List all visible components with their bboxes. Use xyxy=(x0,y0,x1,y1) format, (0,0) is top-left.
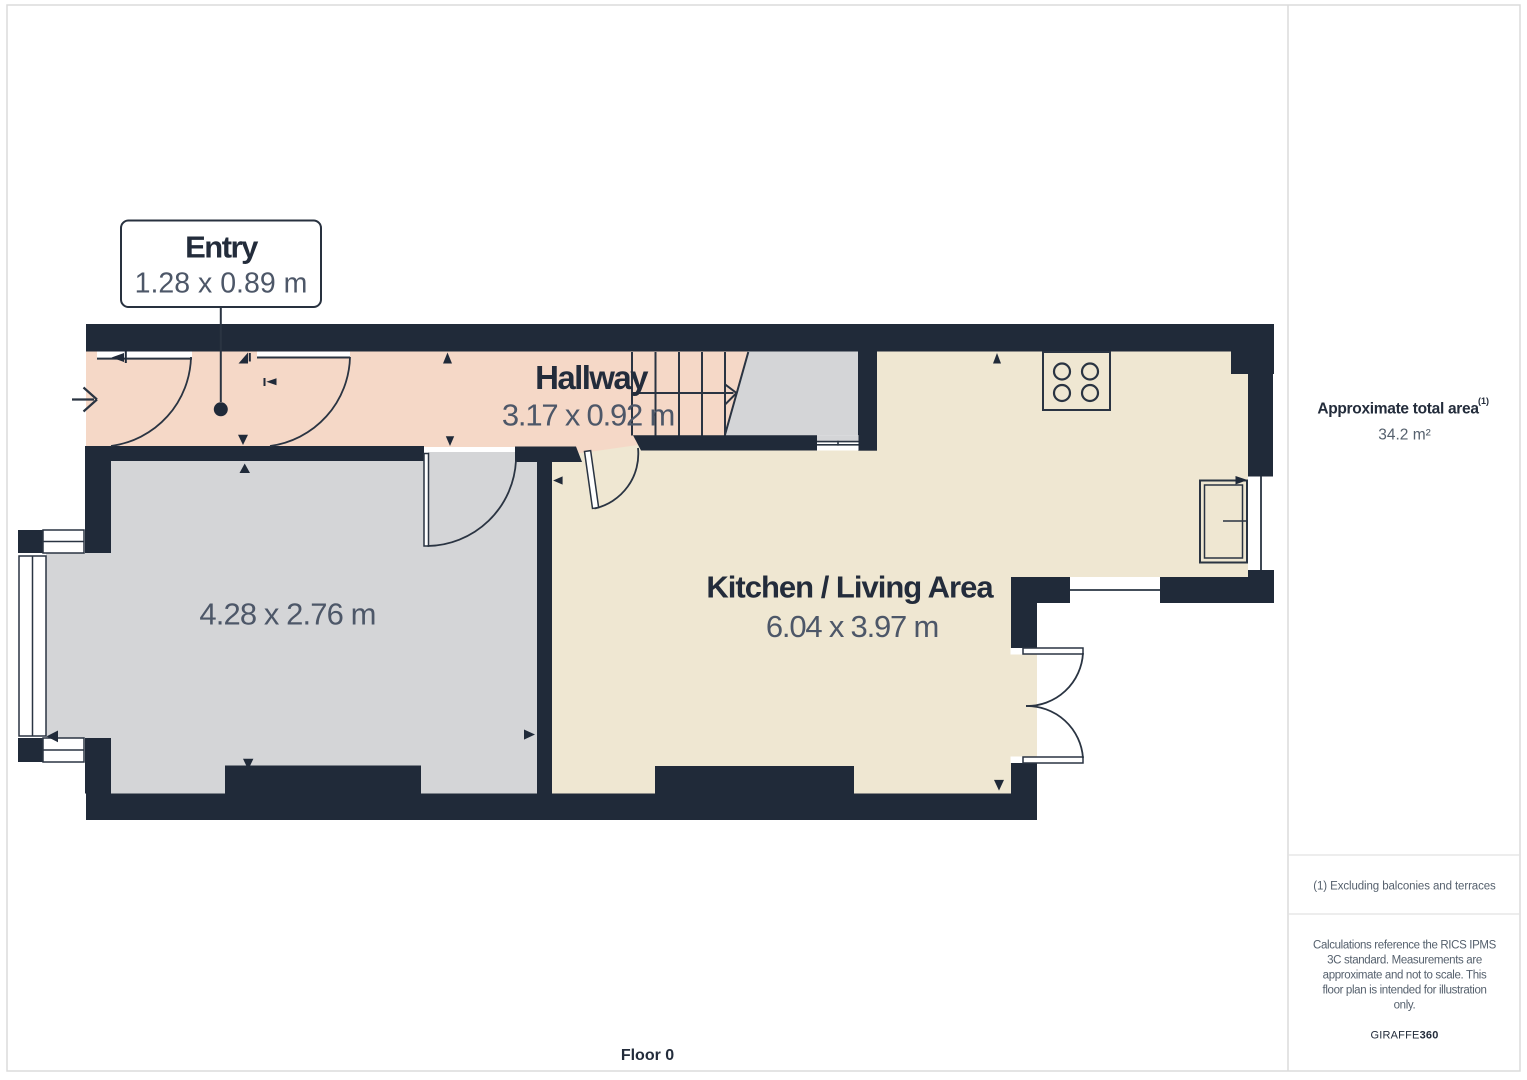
svg-text:34.2 m²: 34.2 m² xyxy=(1378,427,1431,444)
svg-text:3C standard. Measurements are: 3C standard. Measurements are xyxy=(1327,954,1482,966)
svg-text:Calculations reference the RIC: Calculations reference the RICS IPMS xyxy=(1313,939,1497,951)
svg-text:Entry: Entry xyxy=(185,230,259,265)
svg-text:1.28 x 0.89 m: 1.28 x 0.89 m xyxy=(135,268,308,300)
svg-text:4.28 x 2.76 m: 4.28 x 2.76 m xyxy=(199,597,375,632)
svg-text:6.04 x 3.97 m: 6.04 x 3.97 m xyxy=(766,609,938,644)
svg-text:3.17 x 0.92 m: 3.17 x 0.92 m xyxy=(502,398,674,433)
svg-text:floor plan is intended for ill: floor plan is intended for illustration xyxy=(1322,985,1486,997)
svg-text:only.: only. xyxy=(1394,1000,1416,1012)
svg-text:(1): (1) xyxy=(1478,396,1489,406)
svg-text:Hallway: Hallway xyxy=(535,359,649,396)
svg-text:Kitchen / Living Area: Kitchen / Living Area xyxy=(706,569,994,604)
svg-text:(1) Excluding balconies and te: (1) Excluding balconies and terraces xyxy=(1313,880,1496,892)
svg-text:approximate and not to scale.: approximate and not to scale. This xyxy=(1323,970,1487,982)
svg-text:Floor 0: Floor 0 xyxy=(621,1047,674,1064)
svg-text:GIRAFFE360: GIRAFFE360 xyxy=(1370,1030,1438,1042)
svg-text:Approximate total area: Approximate total area xyxy=(1317,401,1479,418)
